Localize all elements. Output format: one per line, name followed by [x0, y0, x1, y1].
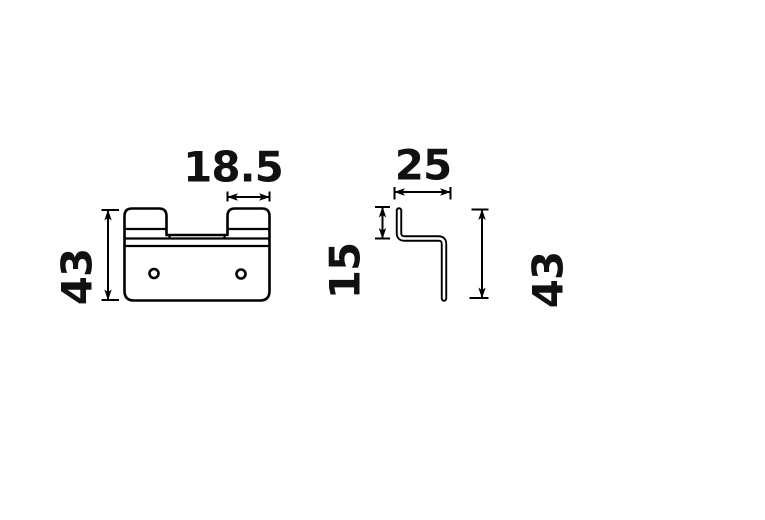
hook-profile-inner	[399, 211, 444, 299]
front-view	[125, 209, 270, 301]
dimension-label-43-side: 43	[524, 252, 573, 308]
dimension-label-43-front: 43	[53, 249, 102, 305]
mounting-hole-left	[150, 269, 159, 278]
dimension-label-15: 15	[321, 243, 370, 299]
side-view	[399, 211, 444, 299]
dimension-label-25: 25	[395, 141, 451, 190]
dimension-label-18-5: 18.5	[183, 143, 283, 192]
technical-drawing: 18.5 43 25 15	[0, 0, 765, 520]
drawing-canvas: 18.5 43 25 15	[0, 0, 765, 520]
hook-profile-outer	[399, 211, 444, 299]
dimension-front-tab-width: 18.5	[183, 143, 283, 202]
dimension-side-overall-height: 43	[470, 210, 573, 309]
dimension-front-overall-height: 43	[53, 210, 119, 305]
front-view-outline	[125, 209, 270, 301]
dimension-side-lip-height: 15	[321, 207, 390, 299]
dimension-side-depth: 25	[395, 141, 452, 200]
mounting-hole-right	[237, 270, 246, 279]
